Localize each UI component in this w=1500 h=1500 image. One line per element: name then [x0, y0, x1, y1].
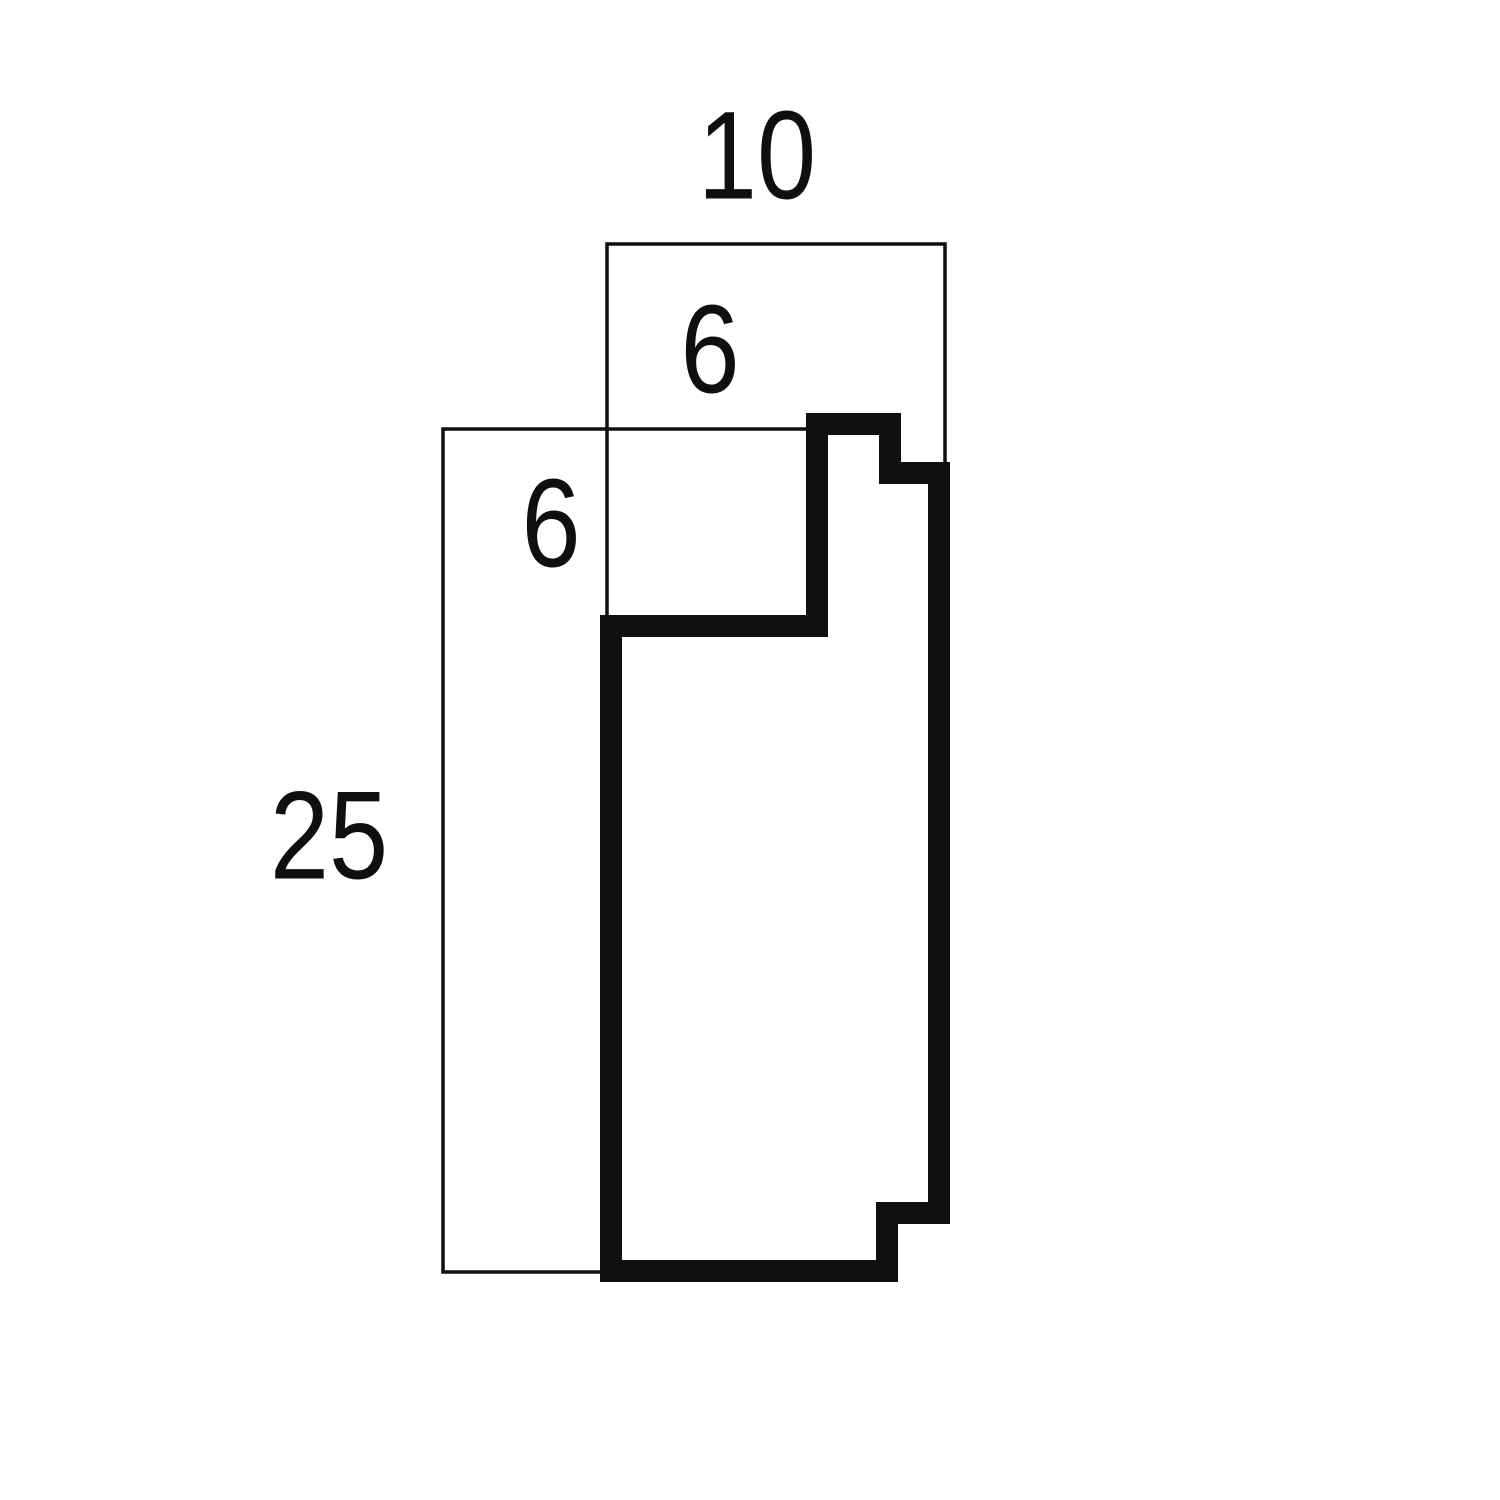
dimension-label-width: 10: [698, 94, 816, 219]
moulding-profile-diagram: 10 6 6 25: [0, 0, 1500, 1500]
profile-outline: [611, 424, 939, 1271]
height-dimension-box: [443, 429, 806, 1272]
dimension-label-rabbet-height: 6: [680, 288, 739, 413]
dimension-label-height: 25: [270, 774, 388, 899]
dimension-label-rabbet-width: 6: [521, 462, 580, 587]
